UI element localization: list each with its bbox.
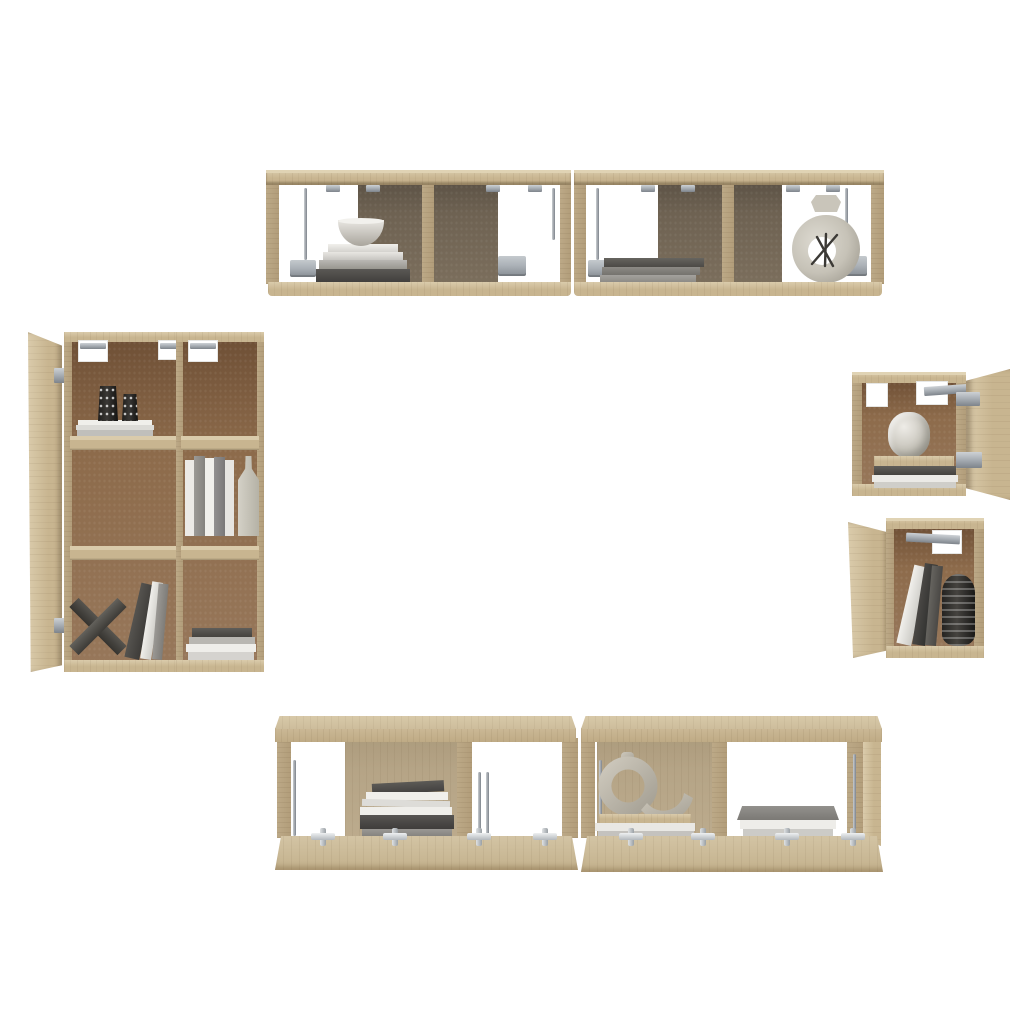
decor-ribbed-vase xyxy=(942,574,975,646)
side-panel xyxy=(974,518,984,658)
fold-hinge-icon xyxy=(775,828,799,846)
lid-stay-rod xyxy=(596,188,599,260)
decor-upright-books xyxy=(185,452,235,536)
back-panel xyxy=(734,184,782,283)
lid-stay-rod xyxy=(304,188,307,260)
divider xyxy=(457,740,472,838)
bottom-panel xyxy=(268,282,571,296)
shelf xyxy=(181,546,259,560)
decor-sphere-vase xyxy=(888,412,930,458)
decor-book-stack xyxy=(872,466,958,488)
decor-book-stack xyxy=(186,628,256,660)
side-panel xyxy=(581,738,595,838)
top-panel xyxy=(574,170,884,185)
cabinet-door-open xyxy=(848,522,890,658)
fold-hinge-icon xyxy=(533,828,557,846)
side-panel xyxy=(560,182,571,284)
wall-bracket xyxy=(498,256,526,276)
top-panel xyxy=(886,518,984,529)
small-cabinet-carcass xyxy=(886,518,984,658)
divider xyxy=(712,740,727,838)
tall-cabinet-left xyxy=(64,332,192,672)
mounting-plate xyxy=(866,383,888,407)
decor-speckled-vase xyxy=(98,386,118,421)
decor-x-bookend xyxy=(68,594,128,658)
cabinet-door-open xyxy=(966,369,1010,500)
decor-book-stack xyxy=(360,782,454,838)
bottom-panel xyxy=(886,646,984,658)
wall-bracket xyxy=(290,260,316,277)
divider xyxy=(422,184,434,283)
hinge-icon xyxy=(326,185,340,192)
hinge-icon xyxy=(681,185,695,192)
side-panel xyxy=(562,738,578,838)
shelf xyxy=(70,436,186,450)
hinge-icon xyxy=(366,185,380,192)
door-hinge-icon xyxy=(956,452,982,468)
top-panel xyxy=(266,170,571,185)
top-panel xyxy=(852,372,966,383)
side-panel xyxy=(852,372,862,496)
top-panel xyxy=(275,716,576,742)
side-panel xyxy=(266,182,279,284)
decor-leaning-books xyxy=(120,580,176,660)
bottom-panel xyxy=(574,282,882,296)
side-panel xyxy=(886,522,894,654)
fold-hinge-icon xyxy=(311,828,335,846)
side-panel xyxy=(847,738,865,838)
decor-board xyxy=(874,456,954,466)
hinge-icon xyxy=(826,185,840,192)
decor-ring-sculpture xyxy=(595,752,699,838)
hinge-icon xyxy=(786,185,800,192)
mounting-plate xyxy=(78,340,108,362)
lid-stay-rod xyxy=(478,772,481,836)
lid-stay-rod xyxy=(486,772,489,836)
door-hinge-icon xyxy=(956,392,980,406)
side-panel xyxy=(176,332,183,672)
fold-hinge-icon xyxy=(383,828,407,846)
divider xyxy=(722,184,734,283)
decor-board-stack xyxy=(76,420,154,436)
lid-stay-rod xyxy=(293,760,296,836)
bottom-tv-bench xyxy=(275,716,885,872)
hinge-icon xyxy=(528,185,542,192)
tall-cabinet-right xyxy=(176,332,264,672)
side-panel xyxy=(871,182,884,284)
hinge-icon xyxy=(486,185,500,192)
lid-stay-rod xyxy=(853,754,856,838)
decor-donut-vase xyxy=(781,194,871,284)
bottom-panel xyxy=(64,660,192,672)
decor-book-stack xyxy=(316,244,410,283)
fold-hinge-icon xyxy=(467,828,491,846)
shelf xyxy=(70,546,186,560)
decor-book-stack xyxy=(600,258,704,283)
fold-hinge-icon xyxy=(841,828,865,846)
fold-hinge-icon xyxy=(619,828,643,846)
fold-hinge-icon xyxy=(691,828,715,846)
bottom-panel xyxy=(176,660,264,672)
small-cabinet-top xyxy=(852,372,1012,500)
back-panel xyxy=(434,184,498,283)
tall-cabinet-group xyxy=(28,330,268,678)
door-edge xyxy=(863,734,881,846)
product-photo-canvas xyxy=(0,0,1024,1024)
small-cabinet-bottom xyxy=(848,518,988,662)
lid-stay-rod xyxy=(552,188,555,240)
side-panel xyxy=(277,738,291,838)
side-panel xyxy=(574,182,586,284)
hinge-icon xyxy=(641,185,655,192)
top-wall-shelf xyxy=(266,170,884,298)
decor-speckled-vase xyxy=(122,394,138,421)
decor-leaning-books xyxy=(894,560,946,646)
top-panel xyxy=(581,716,882,742)
mounting-plate xyxy=(188,340,218,362)
shelf xyxy=(181,436,259,450)
